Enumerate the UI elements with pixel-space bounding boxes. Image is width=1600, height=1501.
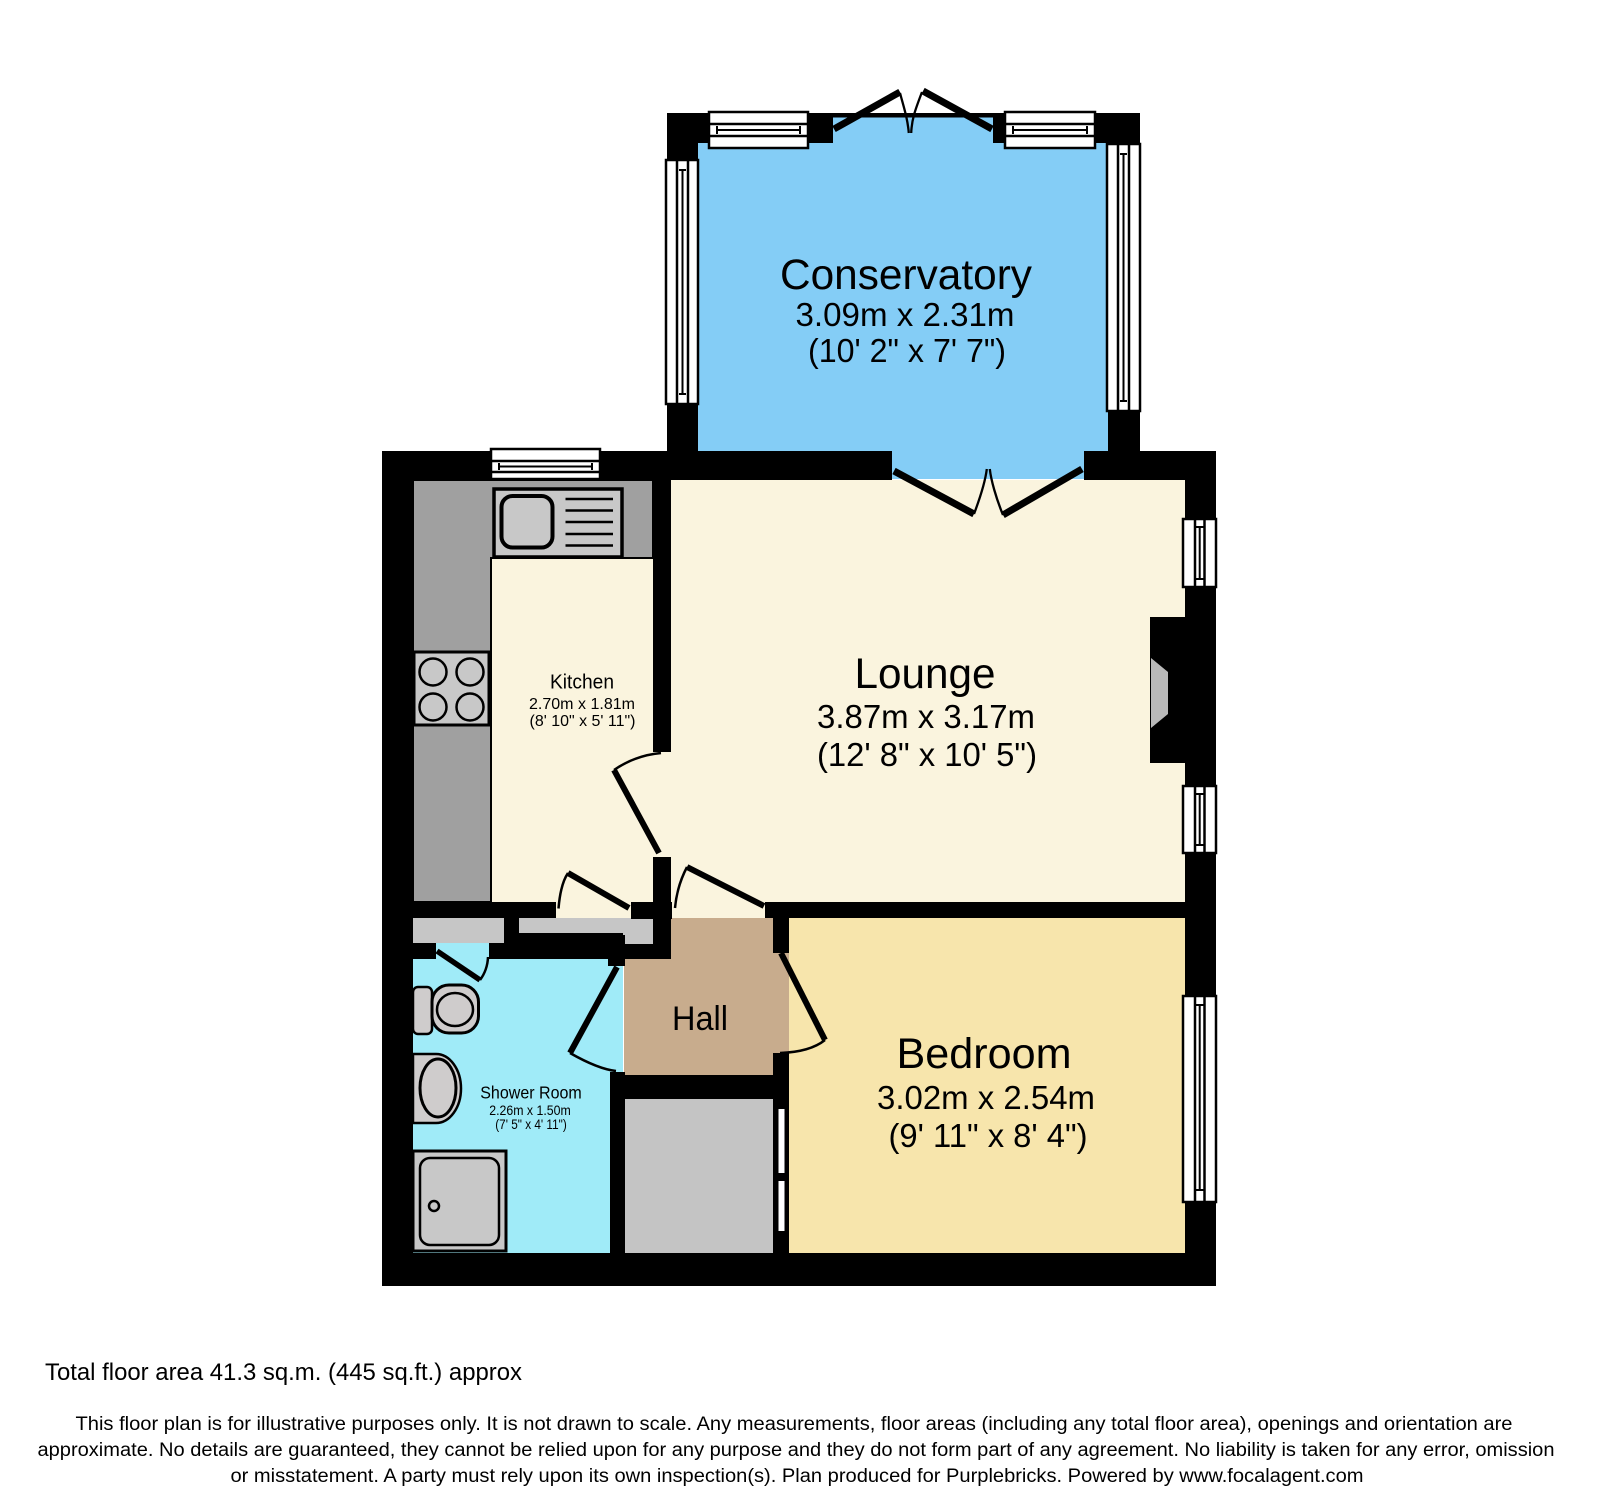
svg-text:(8' 10" x 5' 11"): (8' 10" x 5' 11") <box>530 713 636 730</box>
svg-text:(10' 2" x 7' 7"): (10' 2" x 7' 7") <box>808 332 1006 369</box>
svg-text:Shower Room: Shower Room <box>480 1083 582 1103</box>
svg-text:(9' 11" x 8' 4"): (9' 11" x 8' 4") <box>889 1117 1088 1154</box>
svg-text:Hall: Hall <box>672 1000 728 1038</box>
svg-text:Bedroom: Bedroom <box>897 1030 1072 1078</box>
svg-text:Total floor area 41.3 sq.m. (4: Total floor area 41.3 sq.m. (445 sq.ft.)… <box>45 1359 522 1386</box>
svg-text:Conservatory: Conservatory <box>780 251 1032 299</box>
svg-text:approximate. No details are gu: approximate. No details are guaranteed, … <box>38 1440 1555 1461</box>
svg-text:Kitchen: Kitchen <box>550 672 614 694</box>
svg-text:3.87m x 3.17m: 3.87m x 3.17m <box>817 698 1035 735</box>
svg-text:(12' 8" x 10' 5"): (12' 8" x 10' 5") <box>817 736 1037 773</box>
svg-text:This floor plan is for illustr: This floor plan is for illustrative purp… <box>76 1414 1513 1435</box>
svg-text:3.09m x 2.31m: 3.09m x 2.31m <box>796 296 1015 333</box>
svg-text:Lounge: Lounge <box>855 650 996 698</box>
svg-text:or misstatement. A party must: or misstatement. A party must rely upon … <box>231 1466 1364 1487</box>
svg-text:3.02m x 2.54m: 3.02m x 2.54m <box>877 1079 1095 1116</box>
svg-text:2.26m x 1.50m: 2.26m x 1.50m <box>489 1103 571 1118</box>
svg-text:(7' 5" x 4' 11"): (7' 5" x 4' 11") <box>495 1117 567 1132</box>
svg-text:2.70m x 1.81m: 2.70m x 1.81m <box>529 696 635 713</box>
